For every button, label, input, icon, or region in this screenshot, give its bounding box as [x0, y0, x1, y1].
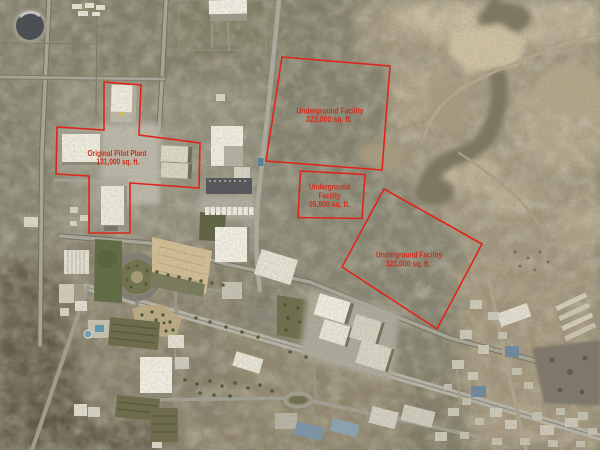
svg-text:323,000 sq. ft.: 323,000 sq. ft. — [306, 115, 352, 124]
svg-text:131,000 sq. ft.: 131,000 sq. ft. — [97, 158, 140, 167]
svg-text:Underground Facility: Underground Facility — [376, 251, 442, 260]
svg-text:323,000 sq. ft.: 323,000 sq. ft. — [386, 260, 431, 269]
svg-text:95,000 sq. ft.: 95,000 sq. ft. — [309, 200, 350, 209]
svg-text:Underground: Underground — [309, 183, 350, 192]
